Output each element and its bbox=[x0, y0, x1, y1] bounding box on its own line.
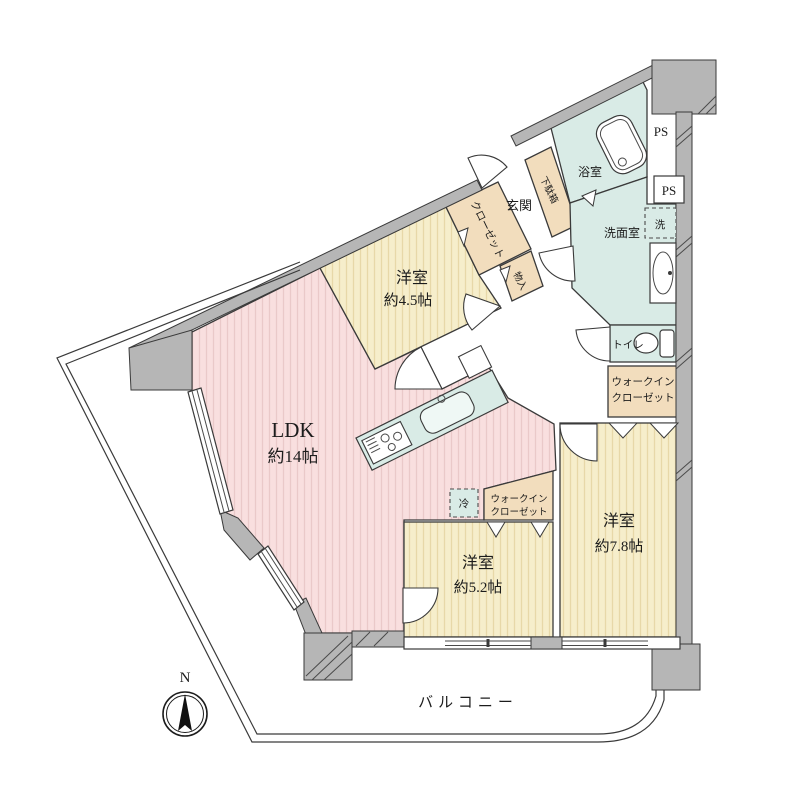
floor-plan-page: N LDK 約14帖 洋室 約4.5帖 洋室 約5.2帖 洋室 約7.8帖 玄関… bbox=[0, 0, 800, 800]
fridge-label: 冷 bbox=[459, 497, 470, 510]
north-label: N bbox=[180, 670, 191, 686]
floor-plan-drawing: N LDK 約14帖 洋室 約4.5帖 洋室 約5.2帖 洋室 約7.8帖 玄関… bbox=[0, 0, 800, 800]
door-toilet bbox=[576, 327, 610, 361]
wall-bottom bbox=[404, 637, 680, 649]
ps-lower-label: PS bbox=[662, 183, 676, 198]
bedroom3-label: 洋室 bbox=[603, 512, 635, 530]
bedroom2-size-label: 約5.2帖 bbox=[454, 579, 503, 596]
wic-small-label-line2: クローゼット bbox=[490, 506, 547, 518]
north-needle-icon bbox=[178, 694, 192, 731]
bedroom1-label: 洋室 bbox=[396, 269, 428, 287]
bedroom3-size-label: 約7.8帖 bbox=[595, 538, 644, 555]
wic-label-line1: ウォークイン bbox=[612, 376, 675, 388]
door-washroom bbox=[539, 246, 575, 281]
balcony-label: バルコニー bbox=[418, 695, 518, 711]
ldk-size-label: 約14帖 bbox=[268, 447, 319, 466]
bedroom1-size-label: 約4.5帖 bbox=[384, 292, 433, 309]
genkan-label: 玄関 bbox=[506, 198, 532, 213]
bedroom2-label: 洋室 bbox=[462, 554, 494, 572]
toilet-label: トイレ bbox=[612, 340, 644, 351]
washer-label: 洗 bbox=[655, 219, 666, 231]
compass: N bbox=[163, 670, 207, 736]
vanity-sink bbox=[650, 243, 676, 303]
pillar-bottom-right bbox=[652, 644, 700, 690]
wic-label-line2: クローゼット bbox=[612, 392, 675, 404]
washroom-label: 洗面室 bbox=[604, 225, 640, 240]
bath-label: 浴室 bbox=[578, 164, 602, 179]
ps-upper-label: PS bbox=[654, 124, 668, 139]
walkin-closet-right bbox=[608, 366, 678, 417]
pillar-bottom-left bbox=[304, 633, 352, 680]
ldk-label: LDK bbox=[271, 418, 314, 442]
wic-small-label-line1: ウォークイン bbox=[490, 494, 547, 505]
